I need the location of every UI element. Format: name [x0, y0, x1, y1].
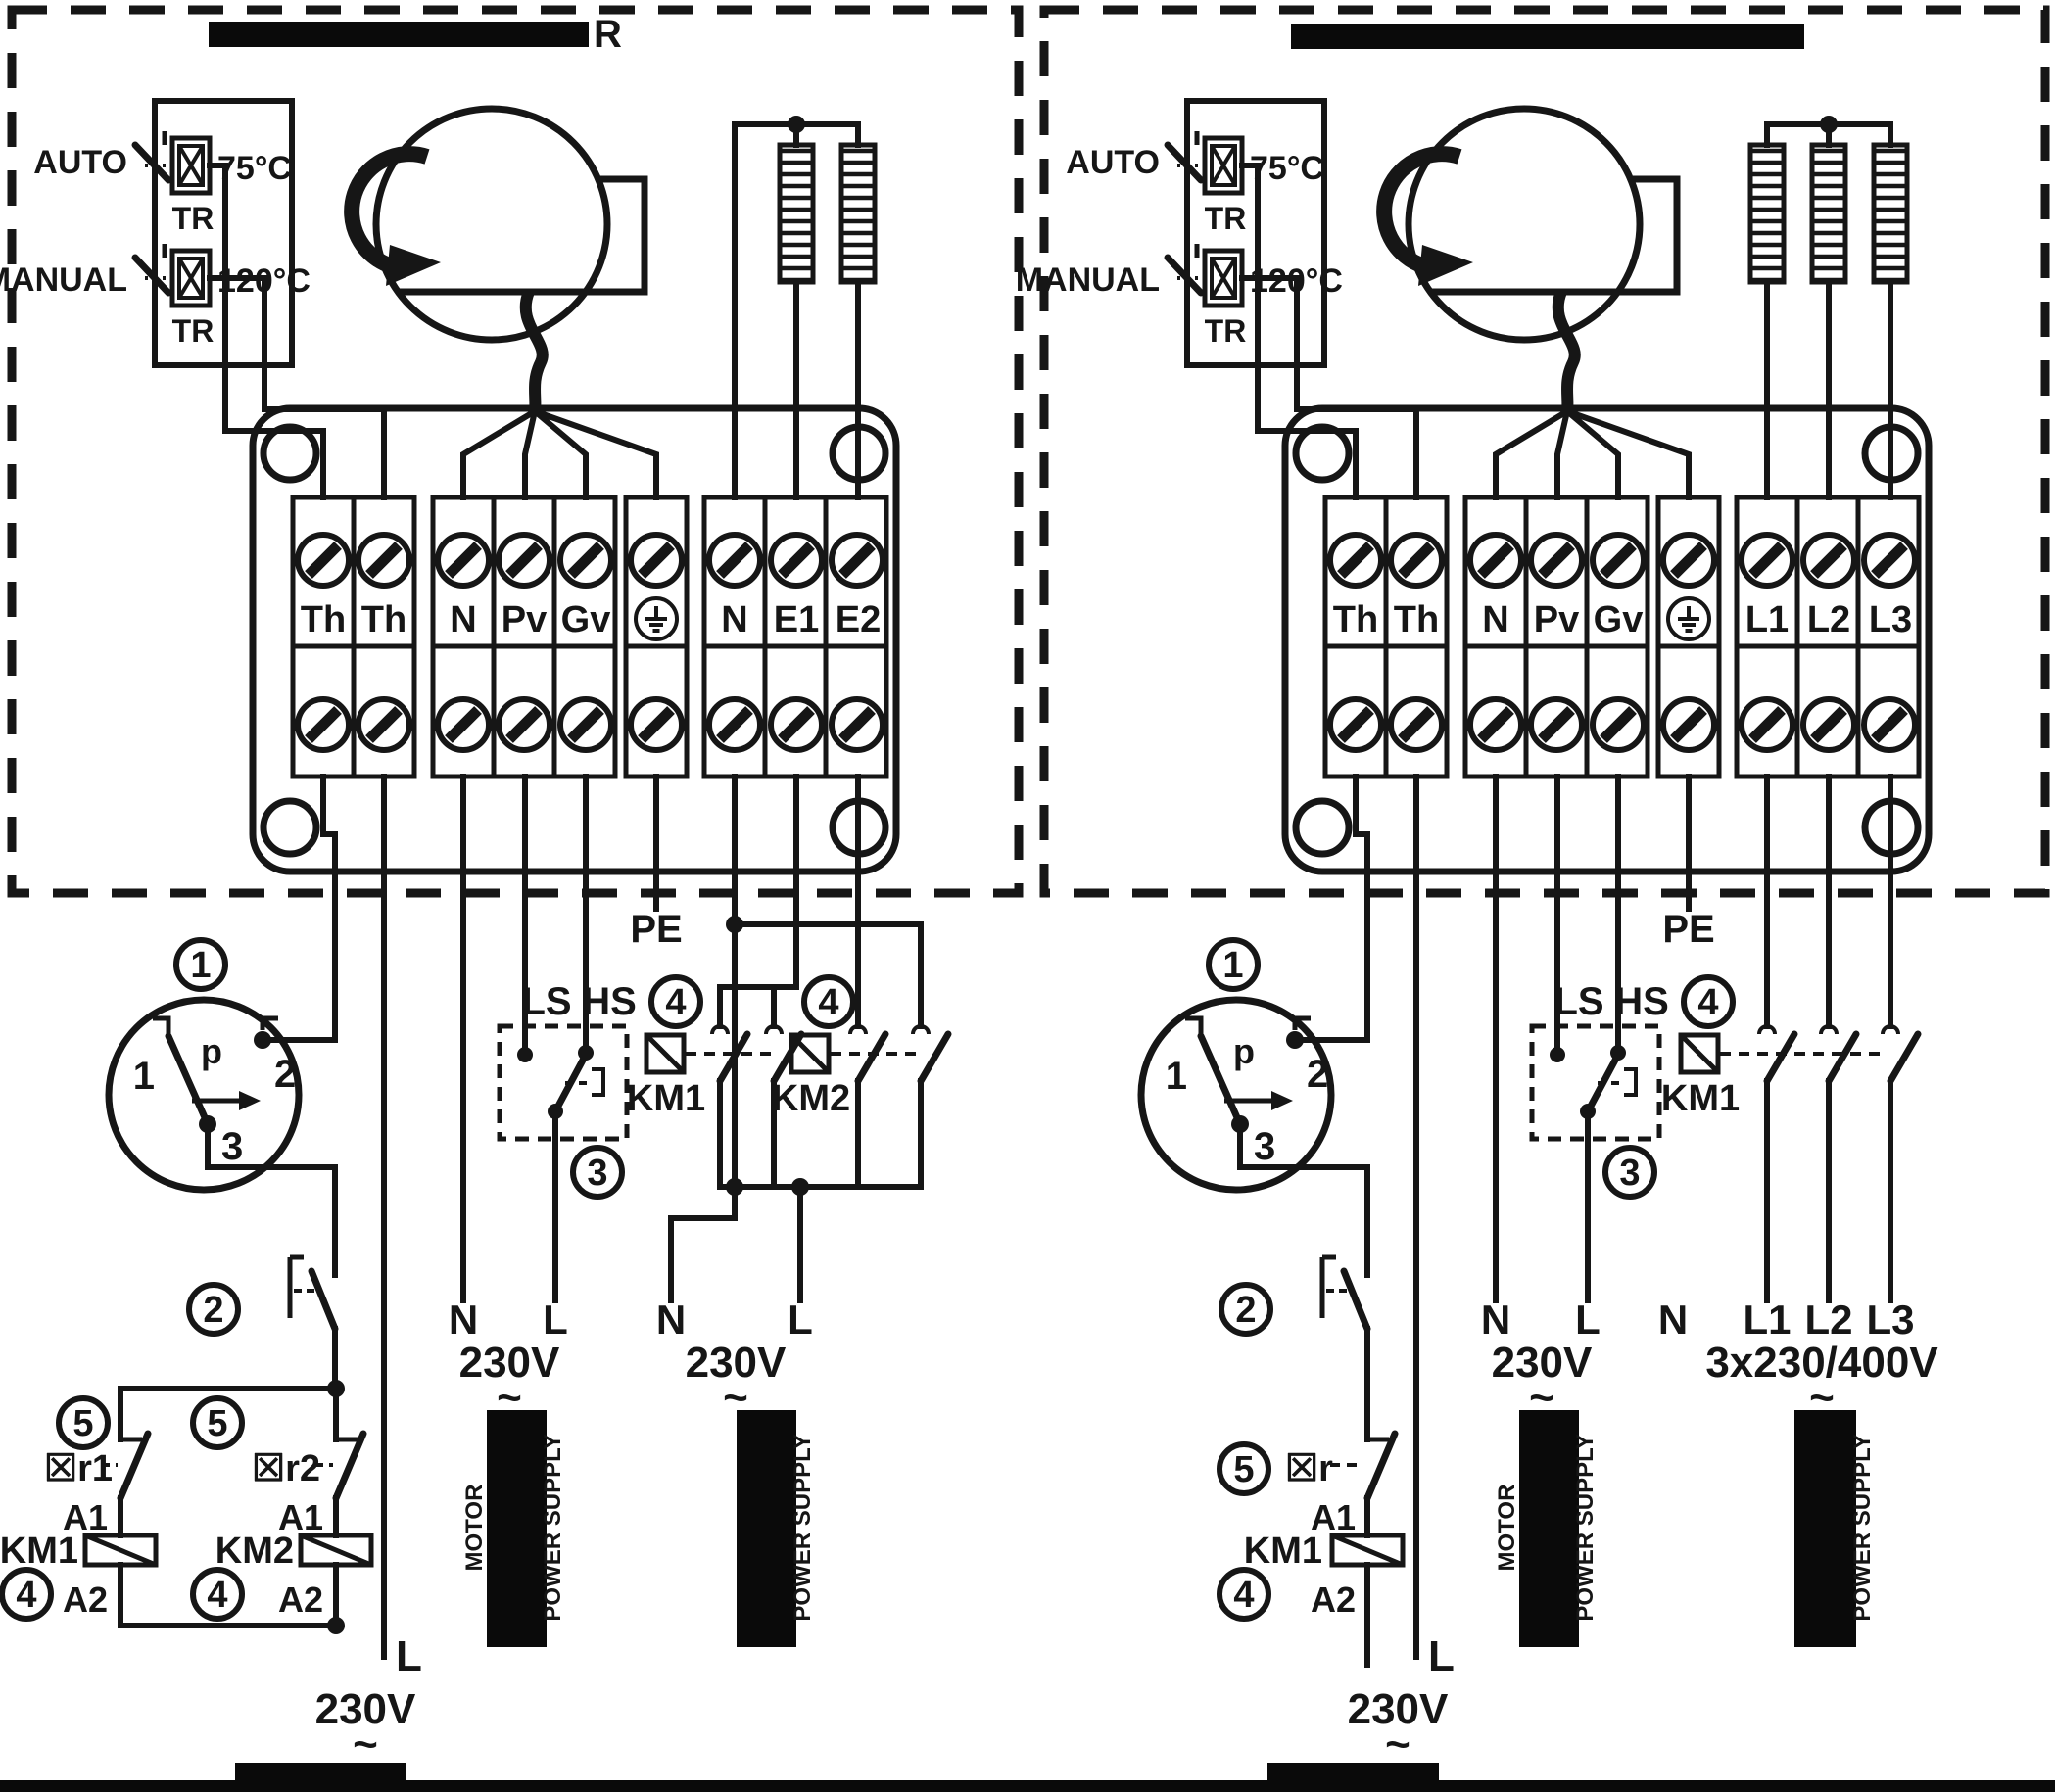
terminal-label-pv: Pv — [502, 599, 547, 640]
terminal-label-n2: N — [721, 599, 747, 640]
terminal-label-th1: Th — [1333, 599, 1378, 640]
heater-element-icon — [1750, 145, 1784, 282]
r2-nc-contact-icon — [336, 1434, 363, 1498]
left-pe-drop — [630, 777, 682, 951]
left-fan — [352, 109, 656, 497]
right-enclosure-dashed-border — [1044, 10, 2045, 893]
terminal-label-th1: Th — [301, 599, 346, 640]
heater-element-icon — [1874, 145, 1907, 282]
right-control-supply — [1267, 777, 1455, 1790]
a2-label: A2 — [63, 1580, 108, 1620]
r1-label: ☒r1 — [44, 1448, 113, 1489]
km2-contact-icon — [913, 1026, 948, 1081]
circled-4-label: 4 — [665, 982, 686, 1023]
right-pe-drop — [1662, 777, 1714, 951]
r2-label: ☒r2 — [252, 1448, 320, 1489]
km1-coil-icon — [1332, 1535, 1403, 1565]
terminal-label-pv: Pv — [1534, 599, 1579, 640]
circled-4-label: 4 — [1697, 982, 1718, 1023]
circled-5-label: 5 — [207, 1403, 227, 1444]
terminal-label-e1: E1 — [774, 599, 819, 640]
terminal-label-l1: L1 — [1745, 599, 1789, 640]
terminal-label-l3: L3 — [1869, 599, 1912, 640]
circled-5-label: 5 — [1233, 1449, 1254, 1490]
left-panel: R Th Th N Pv Gv N E1 E2 — [0, 10, 1019, 1790]
right-fan — [1384, 109, 1689, 497]
terminal-label-th2: Th — [361, 599, 406, 640]
km1-mechanism-icon — [646, 1035, 684, 1072]
heater-supply-redaction-bar — [737, 1410, 796, 1647]
circled-4-label: 4 — [1233, 1575, 1254, 1616]
wiring-diagram-page: AUTO MANUAL 75°C 120°C TR TR — [0, 0, 2055, 1792]
km1-mechanism-icon — [1681, 1035, 1718, 1072]
km1-coil-label: KM1 — [0, 1531, 78, 1572]
r1-nc-contact-icon — [120, 1434, 148, 1498]
km1-label: KM1 — [1661, 1078, 1740, 1119]
heater-supply-redaction-bar — [1794, 1410, 1856, 1647]
terminal-label-n: N — [1482, 599, 1508, 640]
circled-4-label: 4 — [16, 1575, 36, 1616]
heater-element-icon — [1812, 145, 1845, 282]
heater-element-icon — [841, 145, 875, 282]
right-relay-circuit: 5 ☒r A1 KM1 A2 4 — [1219, 1389, 1403, 1665]
circled-5-label: 5 — [72, 1403, 93, 1444]
km2-coil-icon — [301, 1535, 371, 1565]
heater-n-label: N — [1658, 1297, 1688, 1343]
km2-coil-label: KM2 — [215, 1531, 294, 1572]
a2-label: A2 — [1311, 1580, 1356, 1620]
right-motor-supply — [1481, 777, 1601, 1647]
heater-element-icon — [780, 145, 813, 282]
left-relay-circuit: 5 5 ☒r1 ☒r2 A1 KM1 A2 A1 KM2 A2 4 4 — [0, 1380, 371, 1634]
circled-4-label: 4 — [207, 1575, 227, 1616]
right-thermostat-box — [1016, 101, 1416, 497]
left-title-visible-letter: R — [594, 13, 622, 56]
terminal-label-th2: Th — [1394, 599, 1439, 640]
heater-l-label: L — [788, 1297, 813, 1343]
terminal-label-l2: L2 — [1807, 599, 1850, 640]
terminal-label-gv: Gv — [561, 599, 611, 640]
right-title-redaction-bar — [1291, 24, 1804, 49]
km2-label: KM2 — [772, 1078, 850, 1119]
wiring-diagram-svg: AUTO MANUAL 75°C 120°C TR TR — [0, 0, 2055, 1792]
r-label: ☒r — [1285, 1448, 1333, 1489]
heater-l3-label: L3 — [1866, 1297, 1914, 1343]
heater-n-label: N — [656, 1297, 686, 1343]
r-nc-contact-icon — [1367, 1434, 1395, 1498]
heater-l2-label: L2 — [1804, 1297, 1852, 1343]
terminal-label-gv: Gv — [1594, 599, 1644, 640]
terminal-label-n: N — [450, 599, 476, 640]
heater-l1-label: L1 — [1743, 1297, 1791, 1343]
left-speed-selector — [500, 777, 637, 1300]
right-speed-selector — [1532, 777, 1669, 1300]
heater-cord-label: POWER SUPPLY — [789, 1434, 816, 1621]
left-title-redaction-bar — [209, 22, 589, 47]
km1-coil-icon — [85, 1535, 156, 1565]
right-heater-elements — [1750, 116, 1907, 497]
left-motor-supply — [449, 777, 568, 1647]
km1-label: KM1 — [627, 1078, 705, 1119]
left-terminal-labels: Th Th N Pv Gv N E1 E2 — [301, 599, 881, 640]
right-panel: Th Th N Pv Gv L1 L2 L3 KM1 4 N L1 L2 L3 … — [1016, 10, 2045, 1790]
right-terminal-labels: Th Th N Pv Gv L1 L2 L3 — [1333, 599, 1912, 640]
left-thermostat-box — [0, 101, 384, 497]
circled-4-label: 4 — [818, 982, 838, 1023]
a2-label: A2 — [278, 1580, 323, 1620]
km1-coil-label: KM1 — [1244, 1531, 1322, 1572]
left-heater-elements — [735, 116, 875, 497]
left-control-supply — [235, 777, 422, 1790]
km2-mechanism-icon — [791, 1035, 829, 1072]
bottom-edge-line — [0, 1780, 2055, 1792]
heater-cord-label: POWER SUPPLY — [1849, 1434, 1876, 1621]
terminal-label-e2: E2 — [836, 599, 881, 640]
